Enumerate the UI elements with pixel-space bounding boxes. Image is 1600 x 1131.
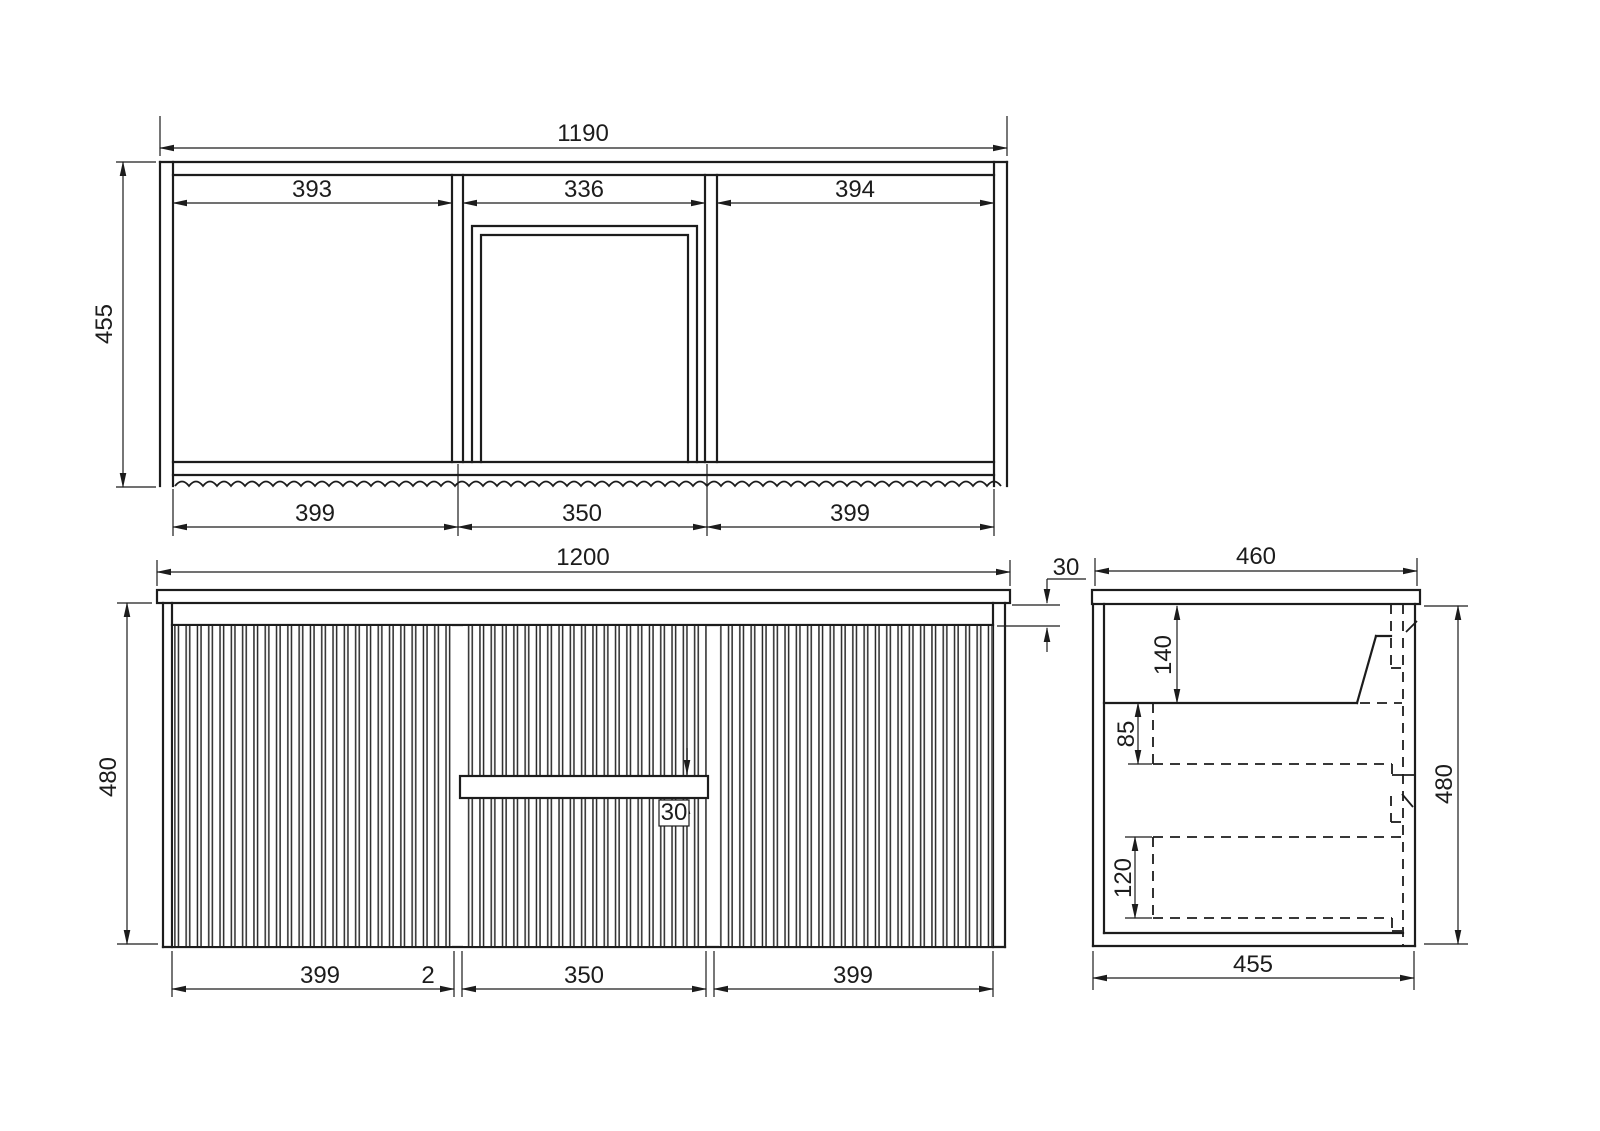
- technical-drawing: 1190 455 393 336 394 399: [0, 0, 1600, 1131]
- fluted-door-left: [173, 626, 452, 946]
- basin-cutout-outer: [472, 226, 697, 462]
- front-gap-label: 2: [421, 962, 434, 989]
- plan-opening-middle-label: 336: [564, 176, 604, 203]
- plan-front-right-label: 399: [830, 500, 870, 527]
- fluted-door-right: [719, 626, 993, 946]
- dim-basin-zone: 140: [1150, 606, 1177, 703]
- hidden-drawer-lines: [1153, 604, 1415, 946]
- side-countertop: [1092, 590, 1420, 604]
- dim-side-top-depth: 460: [1095, 543, 1417, 586]
- side-top-depth-label: 460: [1236, 543, 1276, 570]
- upper-drawer-label: 85: [1113, 721, 1140, 748]
- basin-cutout-inner: [481, 235, 688, 462]
- dim-lower-drawer: 120: [1110, 837, 1152, 918]
- front-view: 1200 480 30 30: [95, 544, 1086, 997]
- side-overall-height-label: 480: [1431, 764, 1458, 804]
- plan-front-left-label: 399: [295, 500, 335, 527]
- dim-plan-overall-depth: 455: [91, 162, 156, 487]
- lower-drawer-label: 120: [1110, 858, 1137, 898]
- dim-plan-opening-middle: 336: [463, 176, 705, 203]
- front-countertop: [157, 590, 1010, 603]
- dim-front-overall-height: 480: [95, 603, 158, 944]
- basin-zone-label: 140: [1150, 635, 1177, 675]
- plan-overall-width-label: 1190: [557, 120, 609, 147]
- dim-plan-opening-left: 393: [173, 176, 452, 203]
- plan-opening-right-label: 394: [835, 176, 875, 203]
- dim-upper-drawer: 85: [1113, 703, 1152, 764]
- plan-carcass: [160, 162, 1007, 486]
- handle-groove: [460, 776, 708, 798]
- side-carcass-depth-label: 455: [1233, 951, 1273, 978]
- plan-opening-left-label: 393: [292, 176, 332, 203]
- front-overall-width-label: 1200: [556, 544, 609, 571]
- plan-view: 1190 455 393 336 394 399: [91, 116, 1007, 536]
- front-drawer-label: 350: [564, 962, 604, 989]
- dim-side-carcass-depth: 455: [1093, 951, 1414, 990]
- handle-groove-height-label: 30: [661, 799, 688, 826]
- dim-side-overall-height: 480: [1424, 606, 1468, 944]
- front-overall-height-label: 480: [95, 757, 122, 797]
- front-door-right-label: 399: [833, 962, 873, 989]
- dim-front-door-widths: 399 2 350 399: [172, 951, 993, 997]
- dim-front-overall-width: 1200: [157, 544, 1010, 586]
- plan-front-middle-label: 350: [562, 500, 602, 527]
- plan-overall-depth-label: 455: [91, 304, 118, 344]
- dim-plan-opening-right: 394: [717, 176, 994, 203]
- scallop-edge: [175, 482, 1001, 487]
- side-carcass: [1093, 604, 1415, 946]
- dim-plan-overall-width: 1190: [160, 116, 1007, 156]
- front-door-left-label: 399: [300, 962, 340, 989]
- side-view: 460 480 455 140 85 120: [1092, 543, 1468, 990]
- front-top-reveal-label: 30: [1053, 554, 1080, 581]
- drawing-sheet: 1190 455 393 336 394 399: [0, 0, 1600, 1131]
